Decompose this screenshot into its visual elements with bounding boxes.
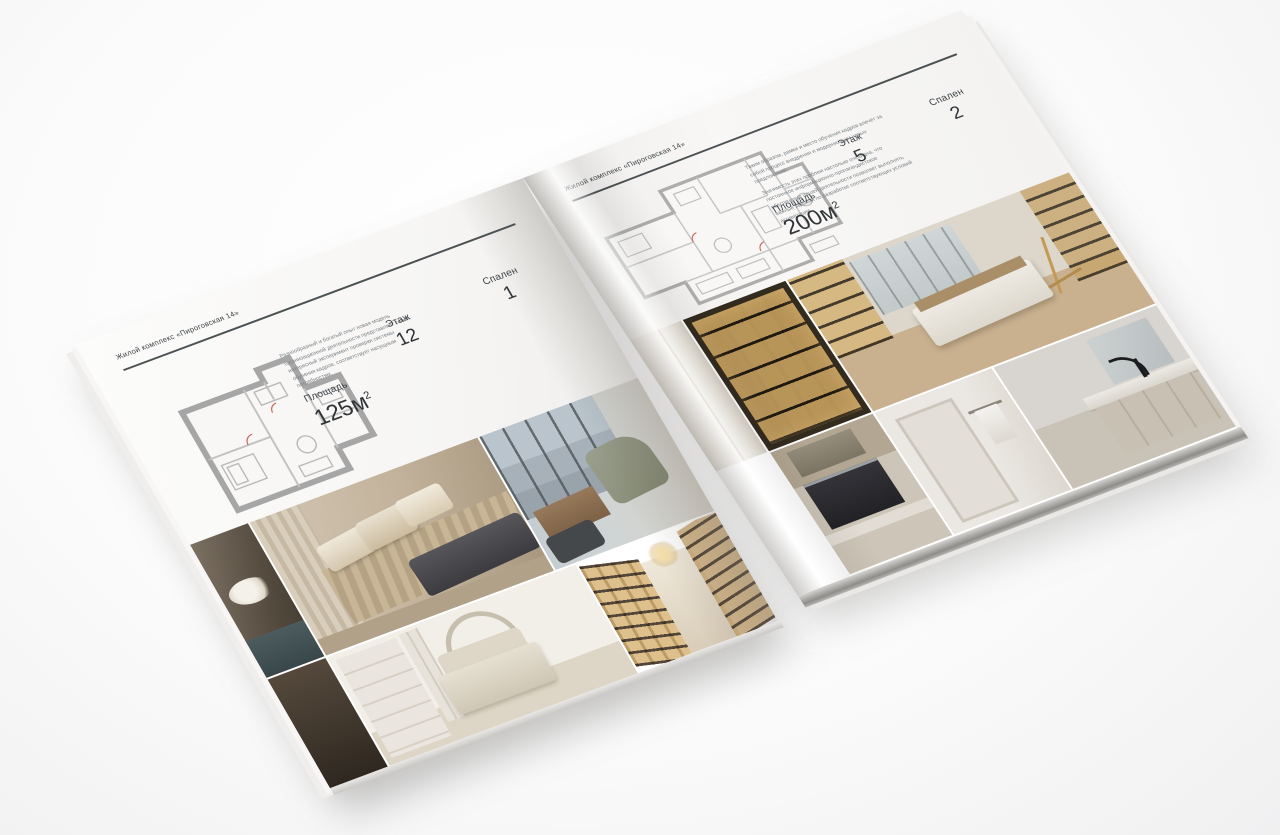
stat-bedrooms: Спален 1	[481, 265, 533, 309]
flower-bouquet	[223, 572, 277, 610]
towel	[974, 403, 1018, 444]
magazine-mockup: Жилой комплекс «Пироговская 14» Разнообр…	[0, 0, 1280, 835]
page-header: Жилой комплекс «Пироговская 14»	[114, 308, 241, 361]
stat-bedrooms: Спален 2	[927, 87, 980, 129]
